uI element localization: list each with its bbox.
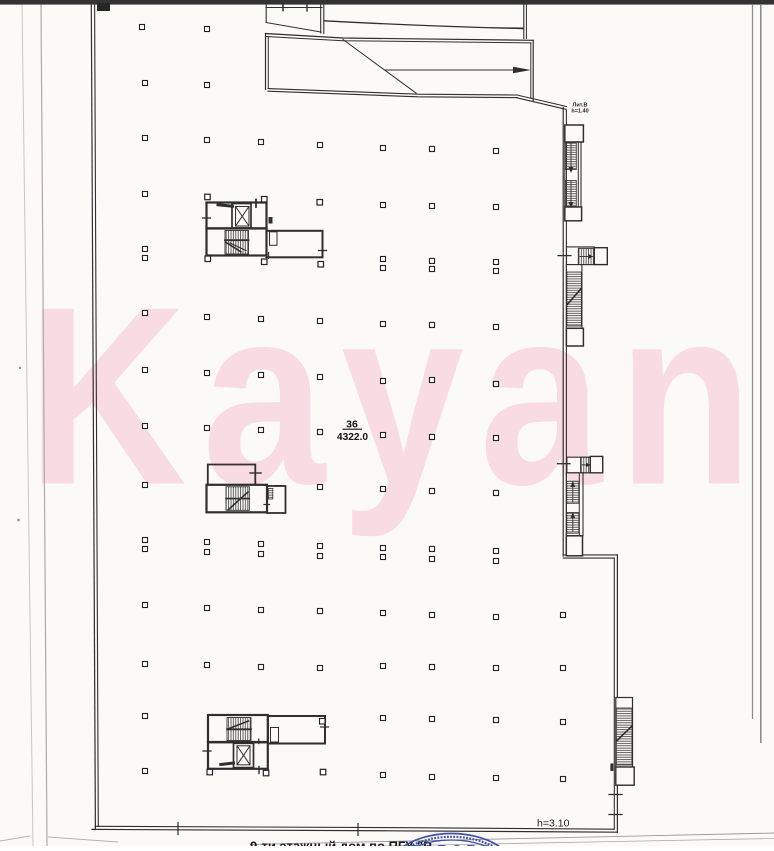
svg-text:h=1.40: h=1.40 [571,109,588,115]
svg-text:Kayan: Kayan [27,254,769,538]
svg-text:РАВОВО: РАВОВО [411,842,496,846]
svg-text:4322.0: 4322.0 [337,432,368,443]
svg-text:h=3.10: h=3.10 [537,818,570,830]
